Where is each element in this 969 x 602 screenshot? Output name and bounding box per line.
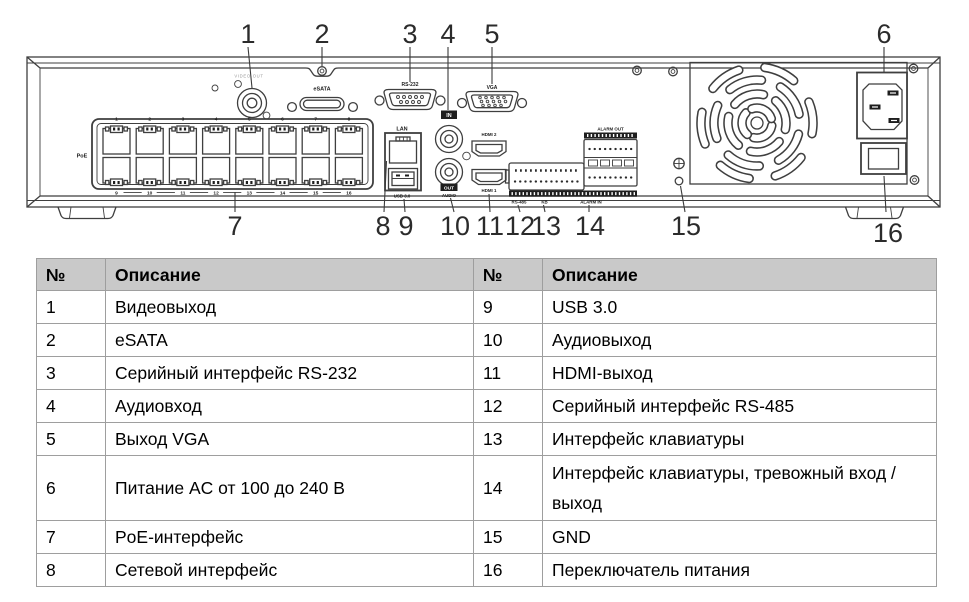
callout-16: 16	[873, 218, 903, 248]
lan-port: LAN	[385, 127, 421, 191]
cell-num: 3	[37, 357, 106, 390]
power-switch	[861, 143, 906, 174]
cell-num: 12	[474, 390, 543, 423]
svg-text:5: 5	[248, 117, 251, 123]
header-num-left: №	[37, 259, 106, 291]
table-row: 4 Аудиовход 12 Серийный интерфейс RS-485	[37, 390, 937, 423]
hdmi-ports: HDMI 2 HDMI 1	[472, 132, 506, 193]
rs485-terminal	[506, 163, 585, 190]
callout-4: 4	[440, 19, 455, 49]
callout-5: 5	[484, 19, 499, 49]
table-header-row: № Описание № Описание	[37, 259, 937, 291]
audio-out-jack: OUT AUDIO	[436, 159, 463, 198]
svg-text:7: 7	[314, 117, 317, 123]
callout-9: 9	[398, 211, 413, 241]
cell-desc: PoE-интерфейс	[106, 521, 474, 554]
cell-num: 9	[474, 291, 543, 324]
callout-15: 15	[671, 211, 701, 241]
cell-desc: eSATA	[106, 324, 474, 357]
vga-label: VGA	[487, 85, 498, 91]
header-desc-left: Описание	[106, 259, 474, 291]
cell-num: 10	[474, 324, 543, 357]
esata-label: eSATA	[313, 87, 330, 93]
cell-desc: Переключатель питания	[543, 554, 937, 587]
svg-text:13: 13	[247, 190, 253, 196]
svg-text:8: 8	[348, 117, 351, 123]
svg-text:11: 11	[180, 190, 185, 196]
callout-7: 7	[227, 211, 242, 241]
lan-label: LAN	[396, 127, 407, 133]
cell-num: 11	[474, 357, 543, 390]
table-row: 2 eSATA 10 Аудиовыход	[37, 324, 937, 357]
cell-num: 7	[37, 521, 106, 554]
svg-text:9: 9	[115, 190, 118, 196]
callout-10: 10	[440, 211, 470, 241]
table-row: 7 PoE-интерфейс 15 GND	[37, 521, 937, 554]
cell-num: 5	[37, 423, 106, 456]
callout-6: 6	[876, 19, 891, 49]
cell-desc: Интерфейс клавиатуры	[543, 423, 937, 456]
hdmi1-label: HDMI 1	[482, 188, 497, 193]
screw-hole	[463, 152, 471, 160]
poe-interface: PoE 19210311412513614715816	[77, 117, 373, 197]
cell-num: 14	[474, 456, 543, 521]
cell-desc: Серийный интерфейс RS-485	[543, 390, 937, 423]
cell-desc: Питание AC от 100 до 240 В	[106, 456, 474, 521]
cell-num: 13	[474, 423, 543, 456]
audio-out-badge: OUT	[444, 185, 454, 191]
svg-text:1: 1	[115, 117, 118, 123]
rs232-port: RS-232	[384, 82, 436, 110]
cell-desc: Аудиовыход	[543, 324, 937, 357]
cell-desc: HDMI-выход	[543, 357, 937, 390]
rs485-label: RS-485	[512, 199, 527, 204]
cell-desc: Серийный интерфейс RS-232	[106, 357, 474, 390]
svg-text:10: 10	[147, 190, 153, 196]
cell-num: 8	[37, 554, 106, 587]
table-row: 8 Сетевой интерфейс 16 Переключатель пит…	[37, 554, 937, 587]
callout-8: 8	[375, 211, 390, 241]
callout-11: 11	[476, 211, 504, 241]
usb-port: USB 3.0	[389, 169, 418, 199]
svg-text:6: 6	[281, 117, 284, 123]
cell-desc: Видеовыход	[106, 291, 474, 324]
alarm-out-label: ALARM OUT	[597, 127, 624, 132]
cell-num: 4	[37, 390, 106, 423]
power-inlet	[857, 73, 907, 139]
kb-label: KB	[541, 199, 547, 204]
hdmi2-label: HDMI 2	[482, 132, 497, 137]
header-num-right: №	[474, 259, 543, 291]
audio-out-label: AUDIO	[442, 193, 457, 198]
cell-desc: GND	[543, 521, 937, 554]
callout-1: 1	[240, 19, 255, 49]
table-row: 6 Питание AC от 100 до 240 В 14 Интерфей…	[37, 456, 937, 521]
svg-text:12: 12	[213, 190, 219, 196]
table-row: 5 Выход VGA 13 Интерфейс клавиатуры	[37, 423, 937, 456]
audio-in-label: IN	[446, 113, 451, 119]
cell-desc: Аудиовход	[106, 390, 474, 423]
cell-desc: USB 3.0	[543, 291, 937, 324]
cell-num: 15	[474, 521, 543, 554]
foot-right	[846, 207, 904, 219]
audio-in-jack: IN	[436, 111, 463, 153]
header-desc-right: Описание	[543, 259, 937, 291]
ground-screw	[674, 158, 684, 185]
cell-num: 2	[37, 324, 106, 357]
svg-text:4: 4	[215, 117, 218, 123]
svg-text:15: 15	[313, 190, 319, 196]
callout-14: 14	[575, 211, 605, 241]
svg-text:14: 14	[280, 190, 286, 196]
usb-label: USB 3.0	[394, 194, 411, 199]
bnc-video-out-connector: VIDEO OUT	[234, 74, 266, 118]
table-row: 3 Серийный интерфейс RS-232 11 HDMI-выхо…	[37, 357, 937, 390]
svg-text:16: 16	[346, 190, 352, 196]
rear-panel-diagram: VIDEO OUT eSATA RS-232 VGA IN	[0, 0, 969, 252]
cell-num: 16	[474, 554, 543, 587]
cell-num: 1	[37, 291, 106, 324]
alarm-in-label: ALARM IN	[580, 199, 601, 204]
description-table: № Описание № Описание 1 Видеовыход 9 USB…	[36, 258, 937, 587]
poe-label: PoE	[77, 154, 88, 160]
cell-desc: Выход VGA	[106, 423, 474, 456]
svg-text:2: 2	[148, 117, 151, 123]
foot-left	[58, 207, 116, 219]
table-row: 1 Видеовыход 9 USB 3.0	[37, 291, 937, 324]
vga-port: VGA	[466, 85, 518, 112]
callout-13: 13	[531, 211, 561, 241]
svg-text:3: 3	[182, 117, 185, 123]
esata-port: eSATA	[300, 87, 344, 111]
cell-desc: Интерфейс клавиатуры, тревожный вход / в…	[543, 456, 937, 521]
cell-desc: Сетевой интерфейс	[106, 554, 474, 587]
cell-num: 6	[37, 456, 106, 521]
rs232-label: RS-232	[402, 82, 419, 88]
callout-2: 2	[314, 19, 329, 49]
callout-3: 3	[402, 19, 417, 49]
video-out-label: VIDEO OUT	[234, 74, 263, 79]
